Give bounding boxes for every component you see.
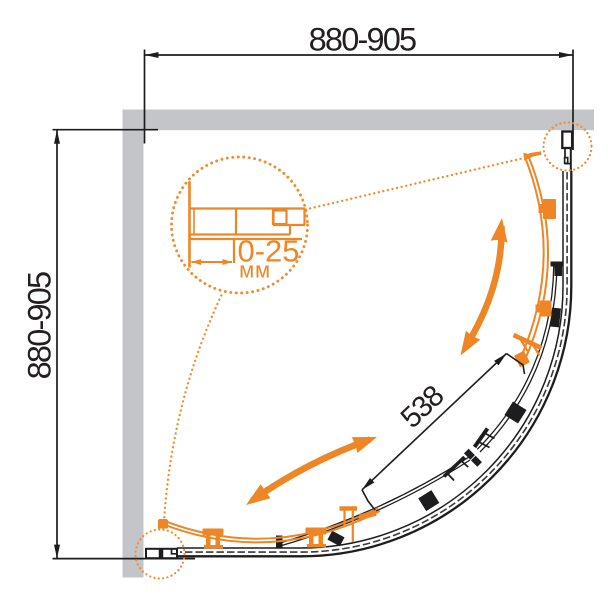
- svg-text:мм: мм: [239, 258, 271, 283]
- svg-text:880-905: 880-905: [309, 22, 416, 58]
- svg-text:880-905: 880-905: [22, 272, 58, 379]
- svg-text:538: 538: [394, 379, 450, 435]
